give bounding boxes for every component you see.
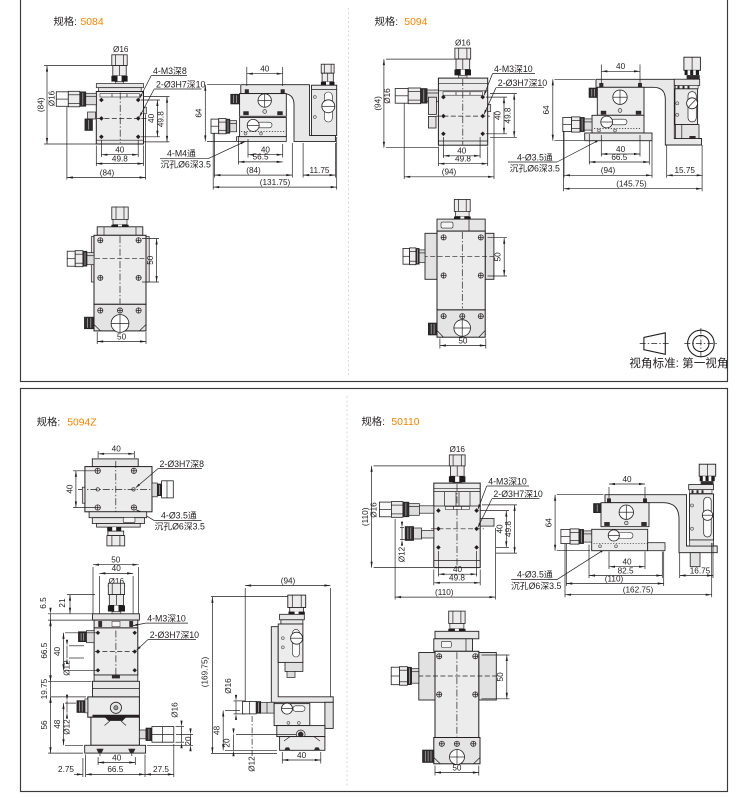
svg-text:50: 50 [494, 252, 503, 262]
svg-text:2-Ø3H7深10: 2-Ø3H7深10 [150, 630, 199, 640]
svg-text:64: 64 [545, 518, 554, 528]
svg-text:50110: 50110 [391, 417, 419, 428]
svg-text:21: 21 [58, 598, 67, 608]
svg-text:2.75: 2.75 [58, 765, 74, 774]
svg-text:40: 40 [622, 475, 632, 484]
svg-text:49.8: 49.8 [504, 107, 513, 123]
svg-text:沉孔Ø6深3.5: 沉孔Ø6深3.5 [155, 521, 205, 531]
svg-text:(94): (94) [601, 166, 616, 175]
svg-text:49.8: 49.8 [455, 155, 471, 164]
svg-text:40: 40 [53, 647, 62, 657]
svg-text:48: 48 [213, 725, 222, 735]
svg-text:40: 40 [616, 62, 626, 71]
svg-text:6.5: 6.5 [39, 597, 48, 609]
svg-text:4-M3深8: 4-M3深8 [153, 66, 187, 76]
svg-text:沉孔Ø6深3.5: 沉孔Ø6深3.5 [161, 159, 211, 169]
svg-text:15.75: 15.75 [674, 166, 695, 175]
svg-text:Ø16: Ø16 [113, 45, 129, 54]
svg-text:Ø12: Ø12 [63, 719, 72, 735]
svg-text:Ø12: Ø12 [63, 660, 72, 676]
svg-text:50: 50 [496, 672, 505, 682]
svg-text:20: 20 [223, 738, 232, 748]
svg-text:40: 40 [65, 484, 74, 494]
svg-text:2-Ø3H7深10: 2-Ø3H7深10 [156, 79, 205, 89]
svg-text:49.8: 49.8 [156, 111, 165, 127]
svg-text:2-Ø3H7深8: 2-Ø3H7深8 [160, 459, 205, 469]
svg-text:规格:: 规格: [361, 415, 385, 428]
svg-text:4-Ø3.5通: 4-Ø3.5通 [517, 152, 553, 162]
svg-text:2-Ø3H7深10: 2-Ø3H7深10 [498, 78, 547, 88]
svg-text:Ø16: Ø16 [224, 678, 233, 694]
svg-text:Ø16: Ø16 [383, 88, 392, 104]
svg-text:64: 64 [542, 105, 551, 115]
svg-text:(110): (110) [435, 588, 454, 597]
svg-text:50: 50 [111, 556, 121, 565]
svg-text:(84): (84) [100, 168, 115, 177]
svg-text:规格:: 规格: [375, 15, 399, 28]
svg-text:50: 50 [452, 763, 462, 772]
svg-text:(94): (94) [442, 168, 457, 177]
svg-text:19.75: 19.75 [40, 678, 49, 699]
svg-text:27.5: 27.5 [153, 765, 169, 774]
svg-text:40: 40 [115, 146, 125, 155]
svg-text:40: 40 [112, 753, 122, 762]
svg-text:(84): (84) [36, 97, 45, 112]
svg-text:Ø12: Ø12 [398, 546, 407, 562]
svg-text:56.5: 56.5 [253, 153, 269, 162]
svg-text:20: 20 [184, 736, 193, 746]
svg-text:66.5: 66.5 [107, 765, 123, 774]
svg-text:66.5: 66.5 [611, 153, 627, 162]
svg-text:49.8: 49.8 [504, 521, 513, 537]
svg-text:Ø12: Ø12 [248, 756, 257, 772]
svg-text:40: 40 [112, 564, 122, 573]
svg-text:4-Ø3.5通: 4-Ø3.5通 [161, 511, 197, 521]
svg-text:(131.75): (131.75) [260, 178, 291, 187]
svg-text:40: 40 [297, 751, 307, 760]
svg-text:5094Z: 5094Z [67, 418, 97, 429]
svg-text:50: 50 [146, 255, 155, 265]
svg-text:规格:: 规格: [37, 416, 61, 429]
svg-text:66.5: 66.5 [40, 642, 49, 658]
svg-text:40: 40 [112, 445, 122, 454]
svg-text:(169.75): (169.75) [201, 656, 210, 687]
svg-text:4-M3深10: 4-M3深10 [147, 614, 186, 624]
svg-text:Ø16: Ø16 [171, 702, 180, 718]
svg-text:沉孔Ø6深3.5: 沉孔Ø6深3.5 [511, 581, 561, 591]
svg-text:40: 40 [147, 113, 156, 123]
svg-text:4-M4通: 4-M4通 [167, 149, 196, 159]
svg-text:Ø16: Ø16 [370, 502, 379, 518]
svg-text:Ø16: Ø16 [48, 90, 57, 106]
svg-text:4-M3深10: 4-M3深10 [494, 64, 533, 74]
svg-text:50: 50 [117, 332, 127, 341]
svg-text:64: 64 [195, 108, 204, 118]
svg-text:(162.75): (162.75) [623, 586, 654, 595]
svg-text:规格:: 规格: [53, 15, 77, 28]
svg-text:(145.75): (145.75) [616, 180, 647, 189]
svg-text:11.75: 11.75 [310, 166, 330, 175]
svg-text:沉孔Ø6深3.5: 沉孔Ø6深3.5 [510, 163, 560, 173]
svg-text:5084: 5084 [81, 17, 104, 28]
svg-text:56: 56 [40, 720, 49, 730]
svg-text:(110): (110) [605, 574, 624, 583]
svg-text:(94): (94) [281, 576, 296, 585]
svg-text:视角标准: 第一视角: 视角标准: 第一视角 [629, 356, 728, 370]
svg-text:4-Ø3.5通: 4-Ø3.5通 [517, 570, 553, 580]
svg-text:(110): (110) [361, 507, 370, 526]
svg-text:50: 50 [458, 336, 468, 345]
svg-text:48: 48 [53, 719, 62, 729]
svg-text:(94): (94) [373, 96, 382, 111]
svg-text:49.8: 49.8 [112, 154, 128, 163]
svg-text:40: 40 [260, 65, 270, 74]
svg-text:Ø16: Ø16 [449, 445, 465, 454]
svg-text:49.8: 49.8 [449, 574, 465, 583]
svg-text:16.75: 16.75 [690, 566, 711, 575]
svg-text:40: 40 [493, 111, 502, 121]
svg-text:40: 40 [622, 558, 632, 567]
svg-text:5094: 5094 [404, 17, 427, 28]
svg-text:4-M3深10: 4-M3深10 [488, 476, 527, 486]
svg-text:2-Ø3H7深10: 2-Ø3H7深10 [493, 489, 542, 499]
svg-text:(84): (84) [246, 166, 261, 175]
svg-text:Ø16: Ø16 [455, 39, 471, 48]
